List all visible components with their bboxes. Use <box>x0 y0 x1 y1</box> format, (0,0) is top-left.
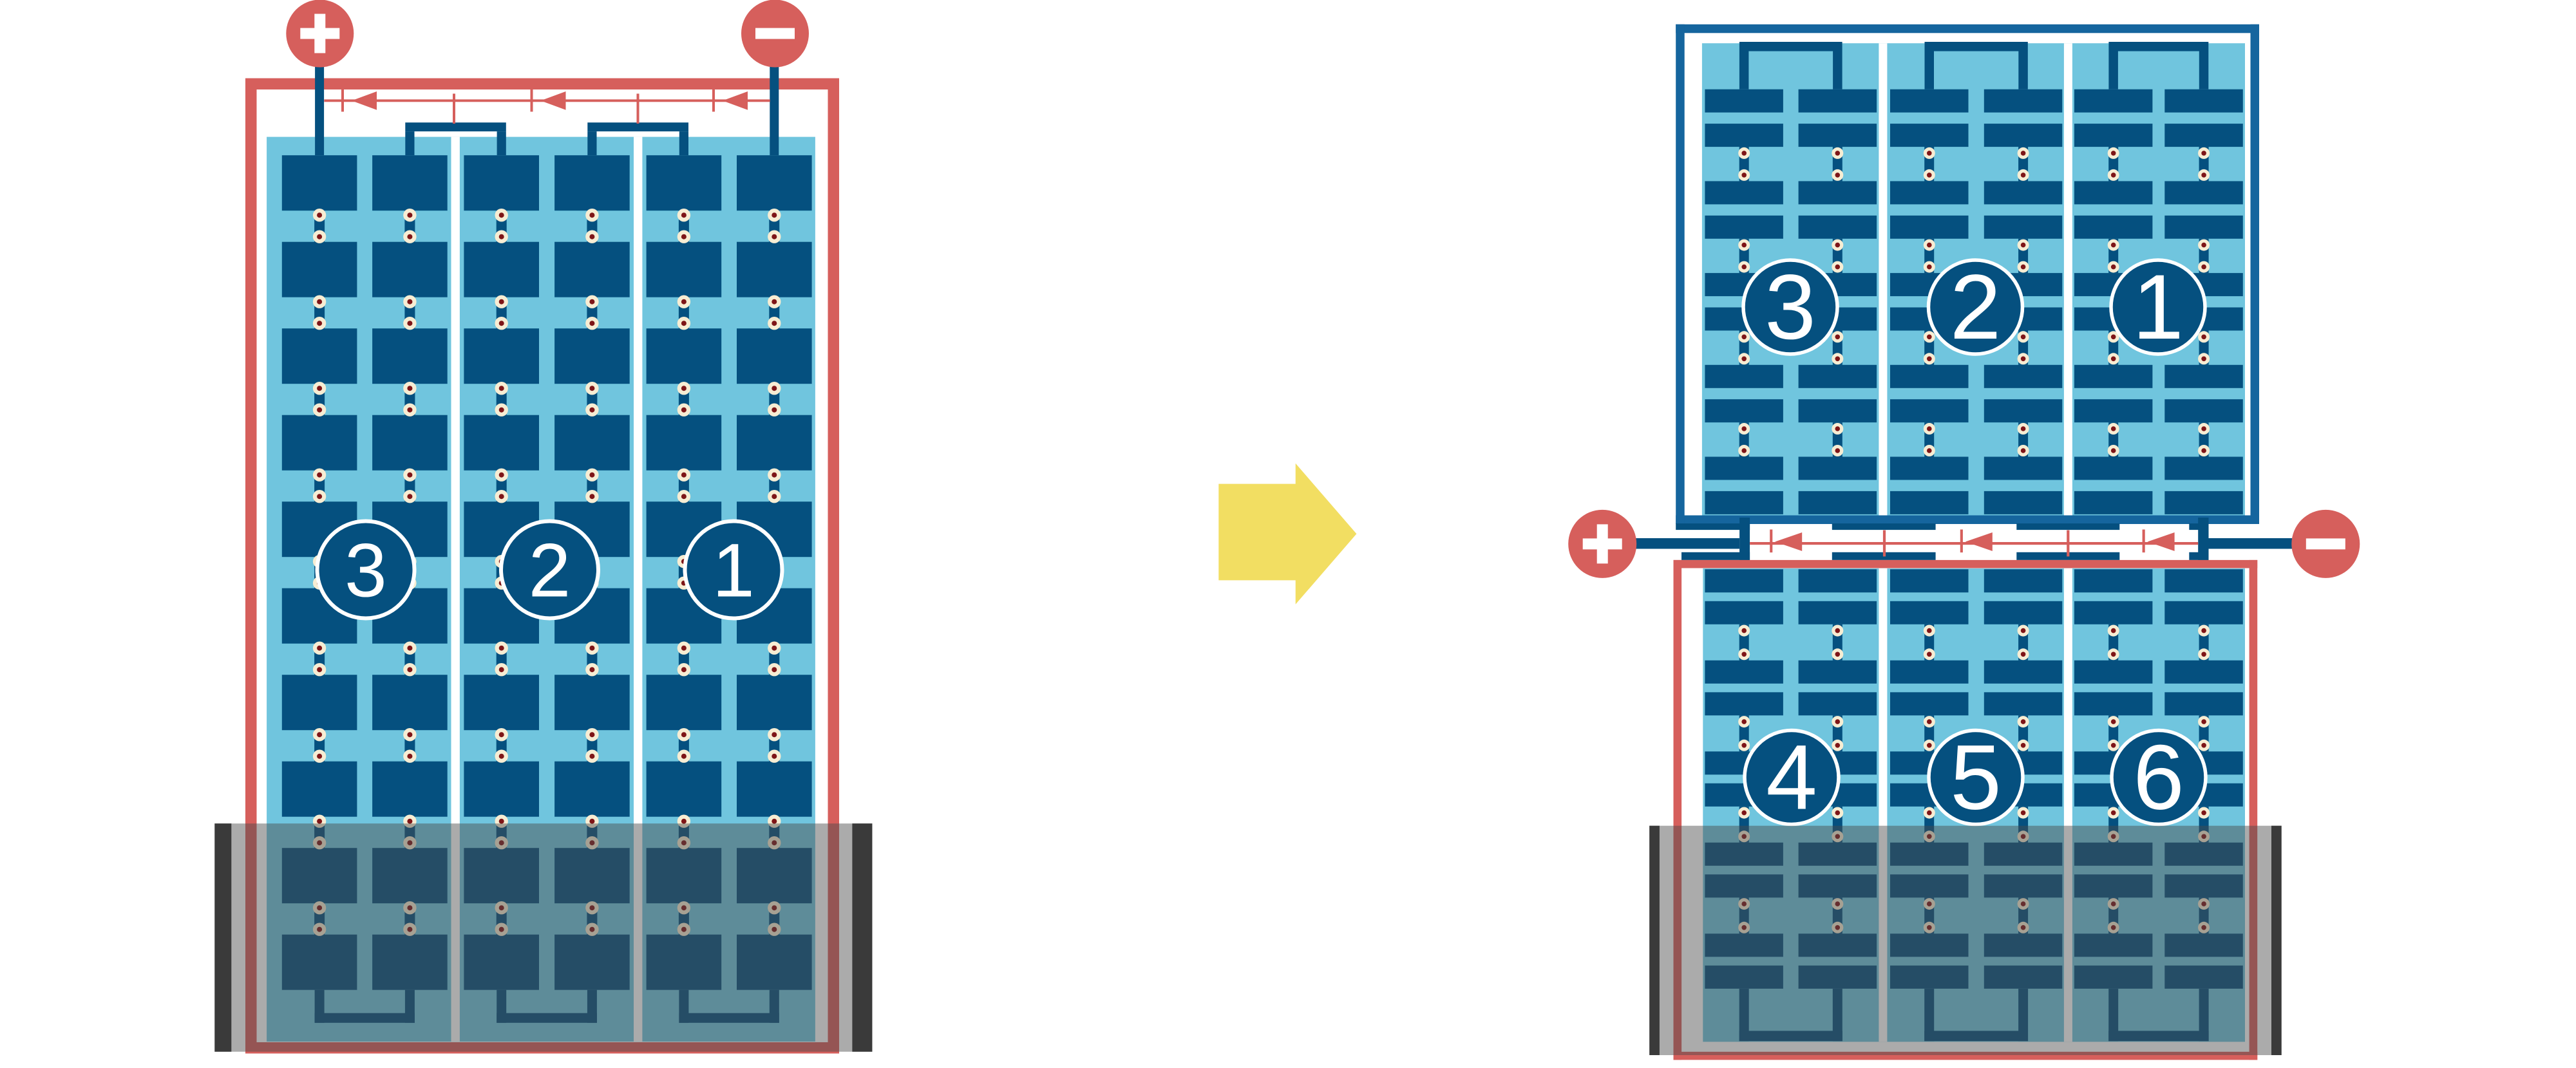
svg-text:3: 3 <box>1765 256 1816 359</box>
svg-text:4: 4 <box>1766 727 1817 829</box>
svg-text:3: 3 <box>345 529 387 614</box>
svg-text:5: 5 <box>1950 727 2002 829</box>
svg-text:6: 6 <box>2133 727 2184 829</box>
svg-text:1: 1 <box>2132 256 2184 359</box>
svg-text:1: 1 <box>712 529 755 614</box>
svg-text:2: 2 <box>1950 256 2002 359</box>
svg-text:2: 2 <box>529 529 571 614</box>
